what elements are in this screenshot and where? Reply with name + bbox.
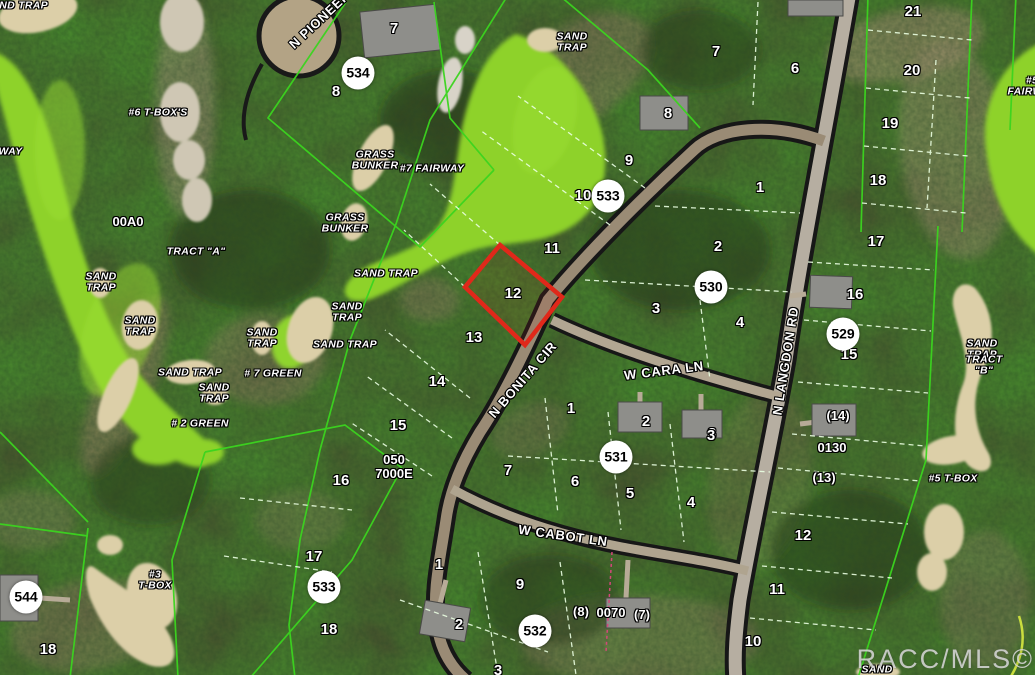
map-view[interactable]: 7889101112131415161718187621201918123417…: [0, 0, 1035, 675]
mls-watermark: RACC/MLS©: [857, 644, 1034, 675]
map-canvas: [0, 0, 1035, 675]
